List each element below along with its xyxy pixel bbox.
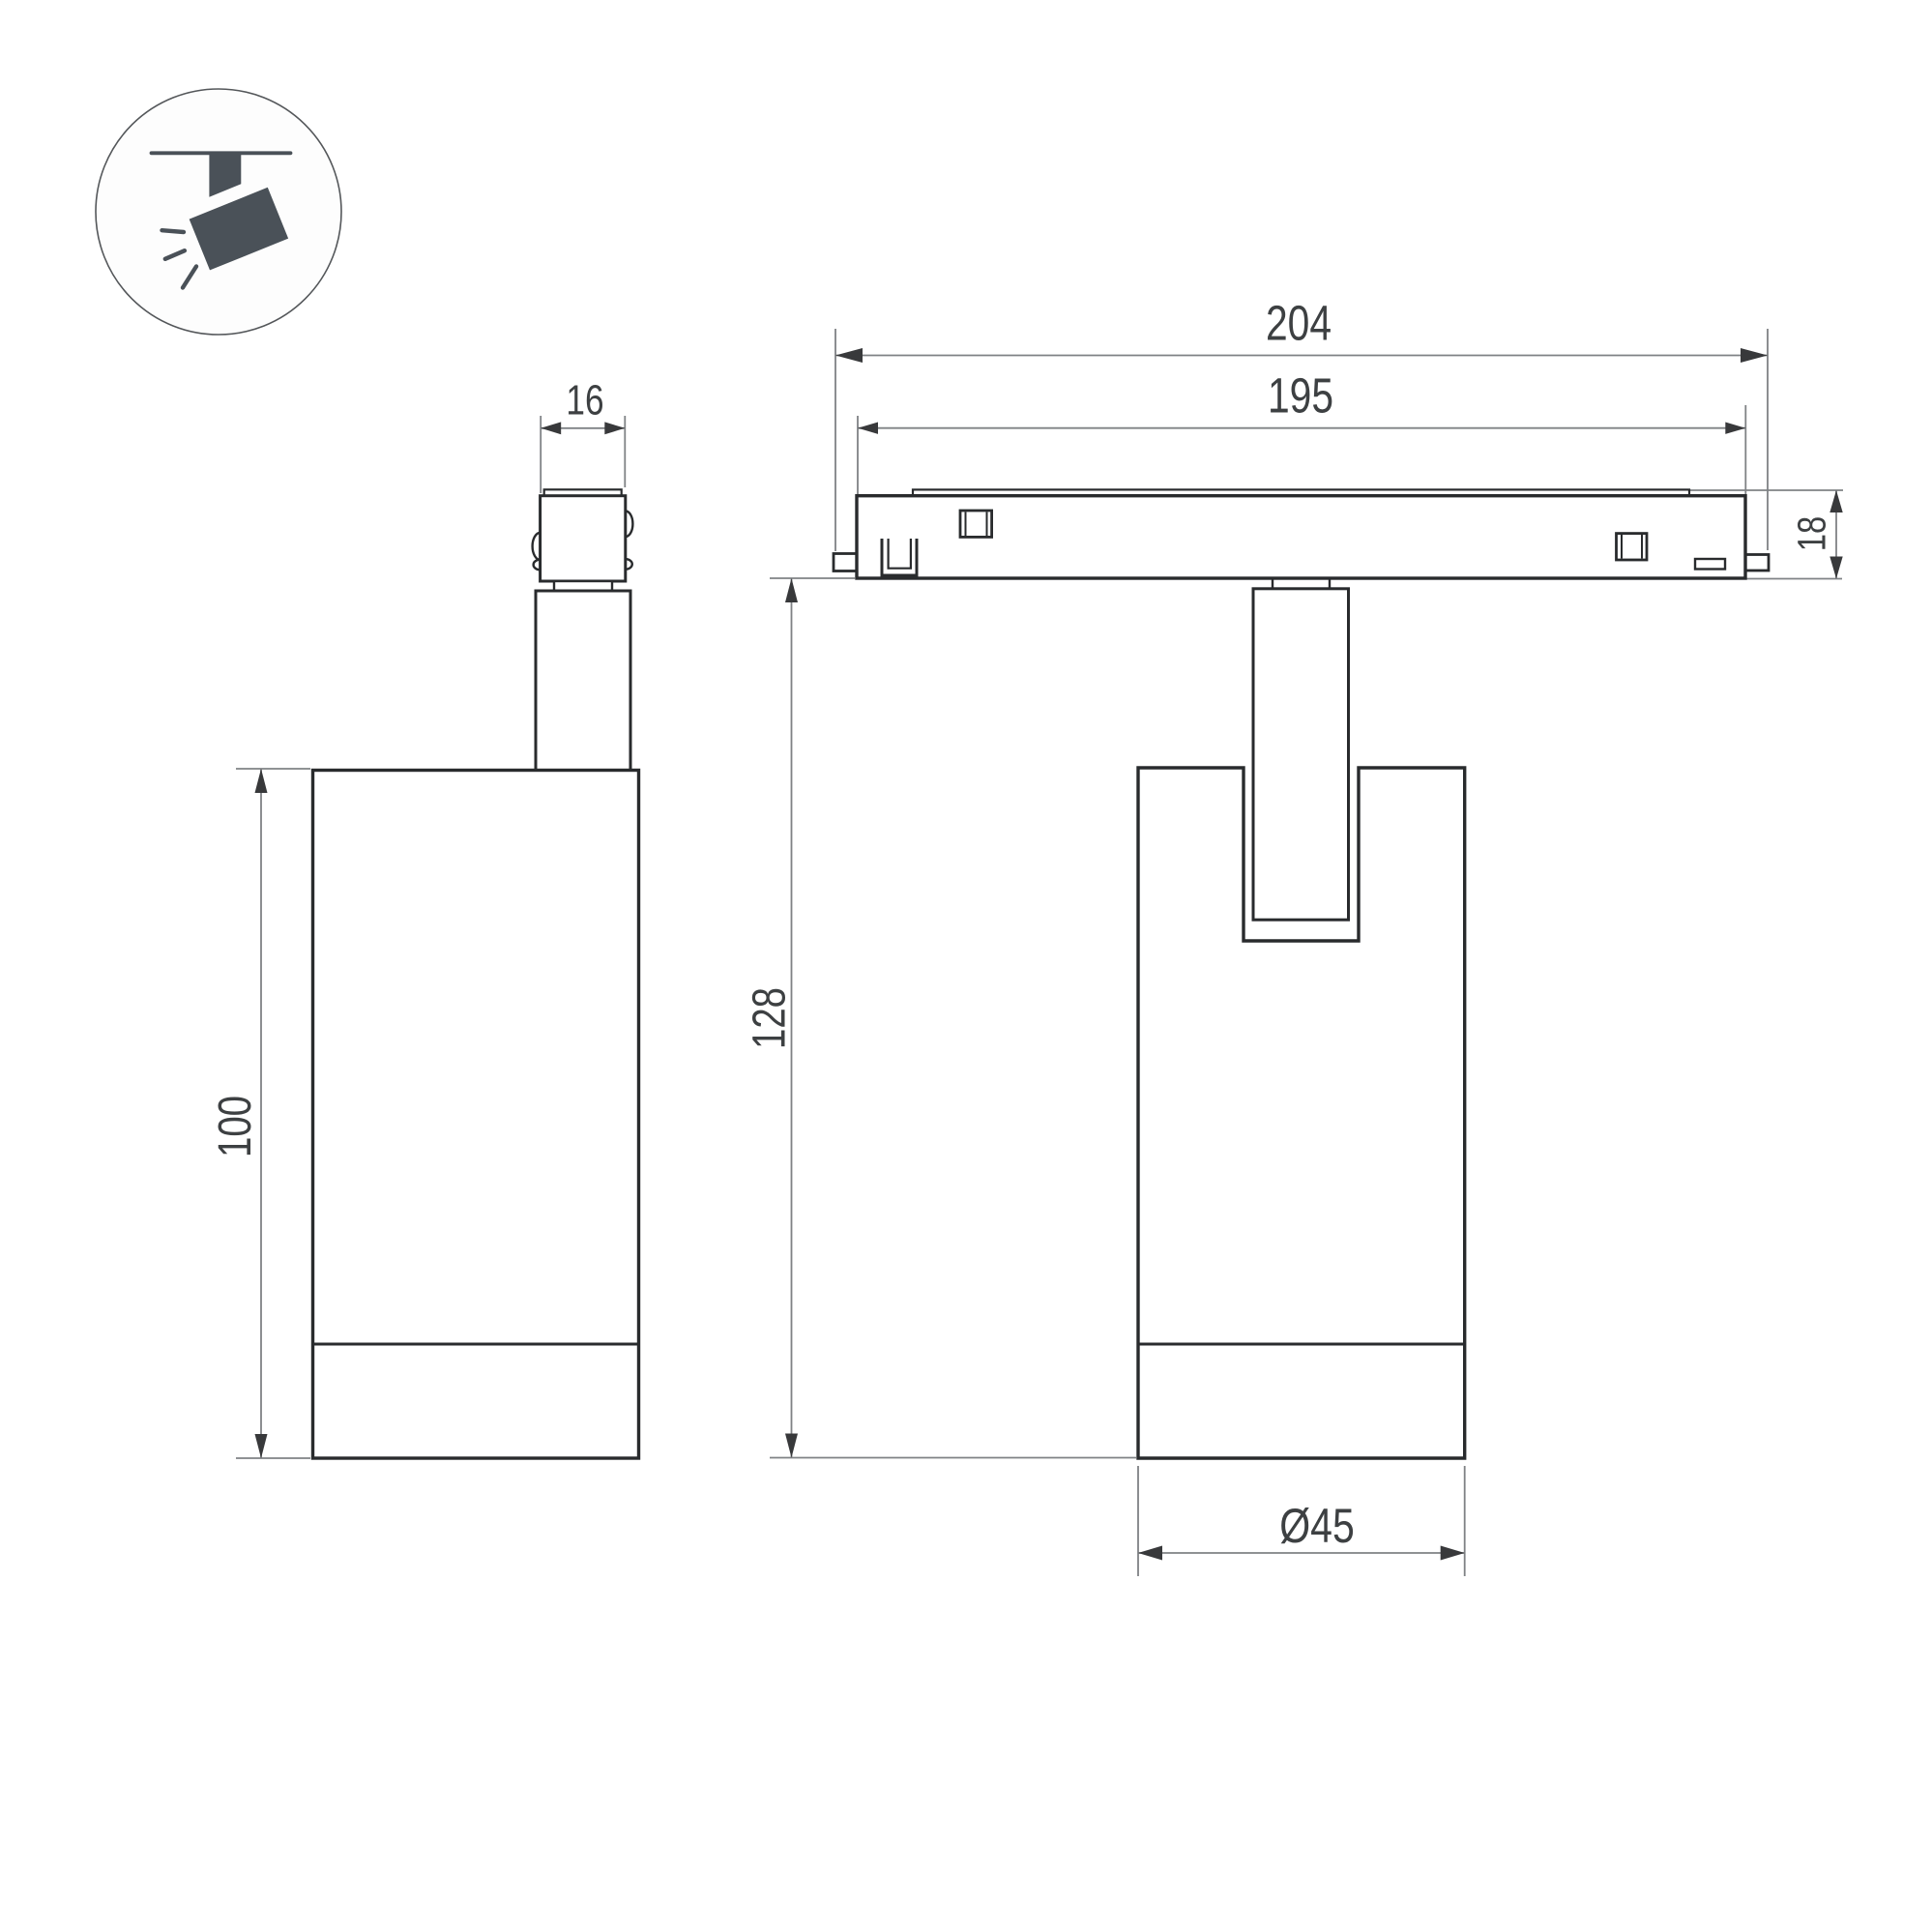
svg-text:16: 16: [566, 377, 603, 424]
svg-text:204: 204: [1266, 295, 1332, 350]
svg-text:195: 195: [1268, 367, 1333, 423]
svg-text:100: 100: [210, 1096, 261, 1157]
svg-text:128: 128: [744, 987, 795, 1049]
svg-text:18: 18: [1789, 516, 1833, 551]
svg-text:Ø45: Ø45: [1279, 1499, 1354, 1553]
